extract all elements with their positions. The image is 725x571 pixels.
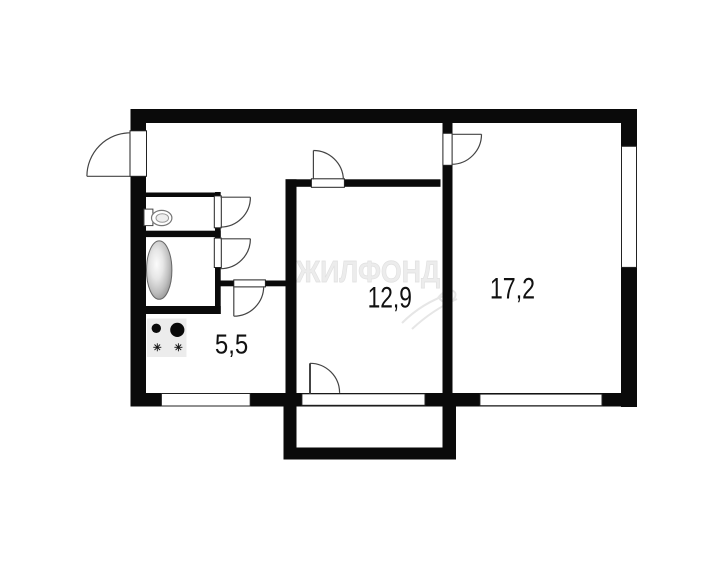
svg-text:17,2: 17,2 — [490, 273, 535, 306]
svg-text:12,9: 12,9 — [368, 282, 412, 315]
svg-text:5,5: 5,5 — [215, 329, 248, 360]
